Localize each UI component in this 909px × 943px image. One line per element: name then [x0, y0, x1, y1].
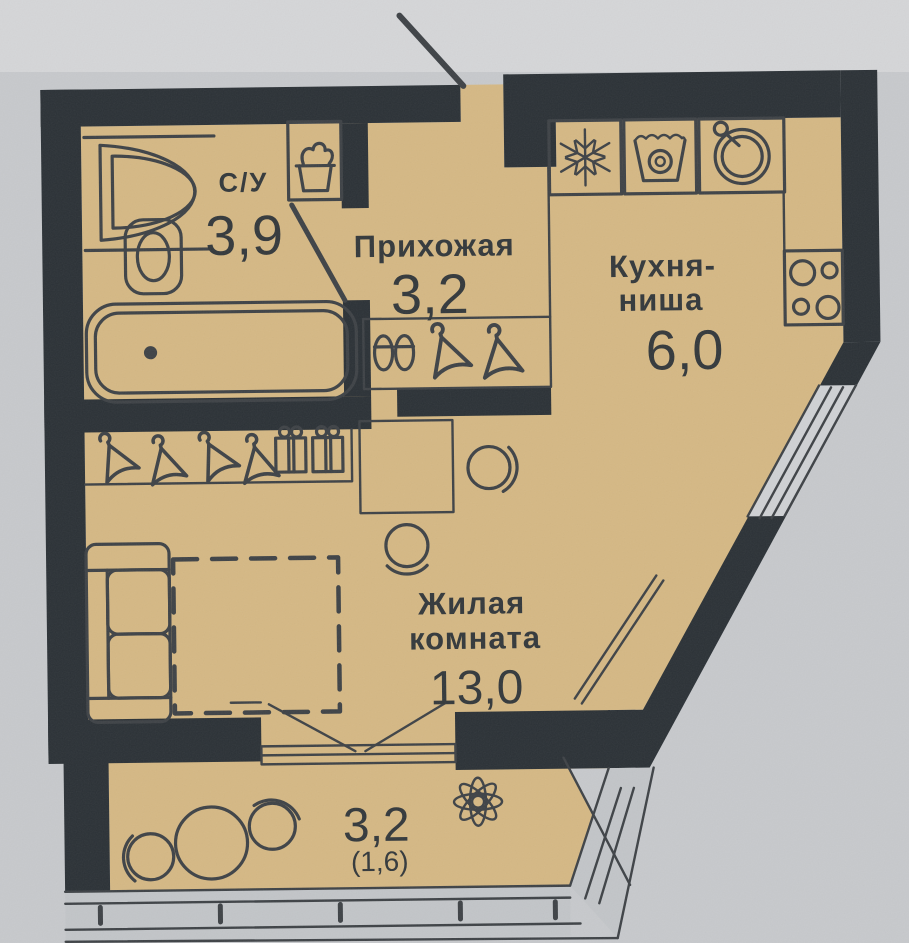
photo-grain-overlay [0, 0, 909, 943]
floor-plan-photo: С/У 3,9 Прихожая 3,2 Кухня- ниша 6,0 Жил… [0, 0, 909, 943]
floor-plan-svg: С/У 3,9 Прихожая 3,2 Кухня- ниша 6,0 Жил… [0, 0, 909, 943]
